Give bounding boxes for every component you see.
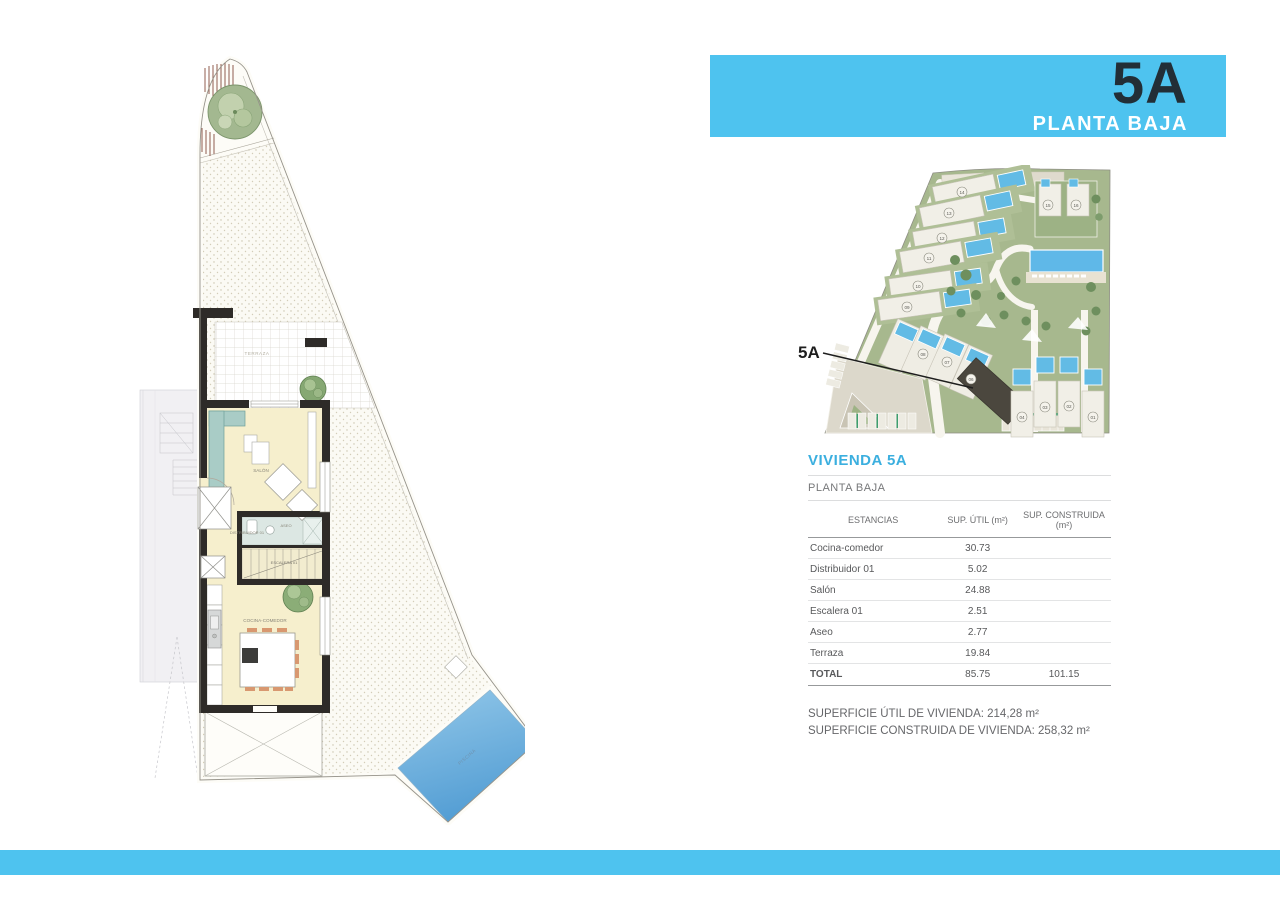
bottom-accent-bar <box>0 850 1280 875</box>
plot-number: 02 <box>1066 404 1072 409</box>
plot-number: 12 <box>939 236 945 241</box>
col-sup-util: SUP. ÚTIL (m²) <box>938 515 1017 525</box>
panel-subtitle: PLANTA BAJA <box>808 482 1111 494</box>
table-row: Salón 24.88 <box>808 580 1111 601</box>
plot-number: 08 <box>920 352 926 357</box>
table-row: Cocina-comedor 30.73 <box>808 538 1111 559</box>
terrace-label: TERRAZA <box>245 351 270 356</box>
kitchen-island <box>242 648 258 663</box>
distribuidor-label: DISTRIBUIDOR 01 <box>230 530 265 535</box>
sideboard <box>308 412 316 488</box>
adjacent-unit-outline <box>140 390 199 778</box>
escalera-label: ESCALERA 01 <box>271 560 298 565</box>
salon-label: SALÓN <box>253 467 269 473</box>
plot-number: 16 <box>1073 203 1079 208</box>
cocina-label: COCINA-COMEDOR <box>243 618 287 623</box>
site-plan-drawing: 01 02 03 04 06 07 08 09 10 11 12 13 14 1… <box>790 165 1130 440</box>
floor-title: PLANTA BAJA <box>1033 113 1188 136</box>
plot-number: 04 <box>1019 415 1025 420</box>
table-total-row: TOTAL 85.75 101.15 <box>808 664 1111 685</box>
table-row: Terraza 19.84 <box>808 643 1111 664</box>
communal-pool <box>1026 250 1106 283</box>
surface-util-line: SUPERFICIE ÚTIL DE VIVIENDA: 214,28 m² <box>808 706 1090 723</box>
plot-number: 09 <box>904 305 910 310</box>
plot-number: 01 <box>1090 415 1096 420</box>
col-estancias: ESTANCIAS <box>808 515 938 525</box>
table-header: ESTANCIAS SUP. ÚTIL (m²) SUP. CONSTRUIDA… <box>808 501 1111 537</box>
aseo-label: ASEO <box>280 523 291 528</box>
unit-title: 5A <box>1112 56 1188 111</box>
plot-number: 03 <box>1042 405 1048 410</box>
kitchen-sink <box>208 610 221 648</box>
col-sup-construida: SUP. CONSTRUIDA (m²) <box>1017 510 1111 530</box>
table-row: Escalera 01 2.51 <box>808 601 1111 622</box>
surface-construida-line: SUPERFICIE CONSTRUIDA DE VIVIENDA: 258,3… <box>808 723 1090 740</box>
surface-summary: SUPERFICIE ÚTIL DE VIVIENDA: 214,28 m² S… <box>808 706 1090 741</box>
plot-number: 13 <box>946 211 952 216</box>
plot-number: 14 <box>959 190 965 195</box>
plot-number: 10 <box>915 284 921 289</box>
table-row: Distribuidor 01 5.02 <box>808 559 1111 580</box>
floor-plan-drawing: TERRAZA PISCINA <box>135 50 525 825</box>
table-row: Aseo 2.77 <box>808 622 1111 643</box>
plot-number: 11 <box>927 256 932 261</box>
terrace-tree <box>300 376 326 402</box>
kitchen-patio-tree <box>283 582 313 612</box>
callout-5a-label: 5A <box>798 343 820 362</box>
uncovered-patio <box>205 712 322 776</box>
plot-number: 06 <box>968 377 974 382</box>
panel-title: VIVIENDA 5A <box>808 452 1111 469</box>
plot-number: 07 <box>944 360 950 365</box>
plot-number: 15 <box>1045 203 1051 208</box>
areas-panel: VIVIENDA 5A PLANTA BAJA ESTANCIAS SUP. Ú… <box>808 452 1111 686</box>
brochure-page: TERRAZA PISCINA <box>0 0 1280 902</box>
header-band: 5A PLANTA BAJA <box>710 55 1226 137</box>
